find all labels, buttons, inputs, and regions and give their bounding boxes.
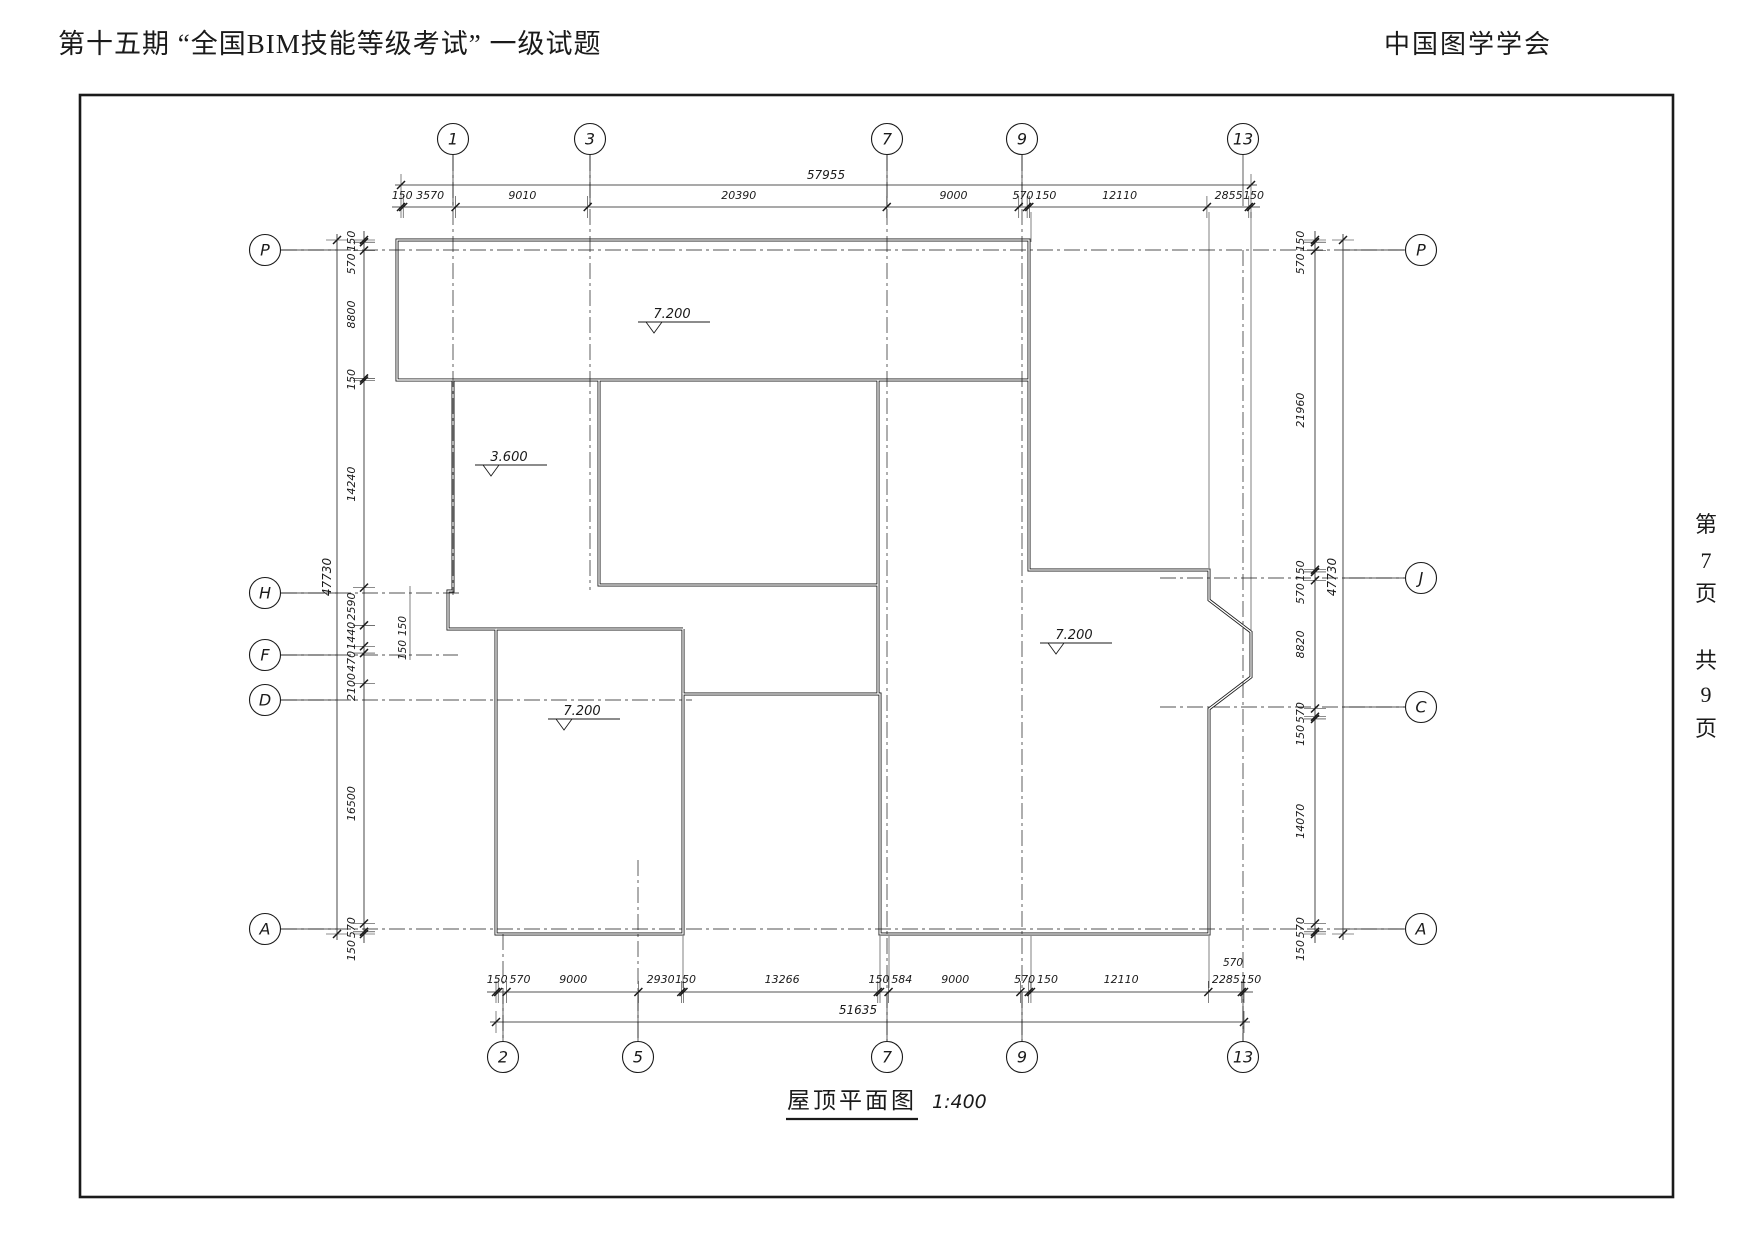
svg-text:150: 150 [487,973,508,986]
svg-text:A: A [1415,920,1427,939]
svg-text:A: A [259,920,271,939]
svg-text:150: 150 [1294,940,1307,961]
svg-text:2285: 2285 [1212,973,1240,986]
svg-text:7: 7 [882,130,893,149]
svg-text:C: C [1415,698,1427,717]
grid-circle-3: 3 [575,124,606,207]
svg-text:150: 150 [1294,560,1307,581]
dim-total-bottom: 51635 [490,1003,1250,1033]
svg-text:150: 150 [345,940,358,961]
roof-plan-drawing: 137913257913PHFDAPJCA1503570901020390900… [0,0,1754,1240]
svg-text:7: 7 [1701,548,1712,573]
svg-text:1: 1 [448,130,458,149]
svg-text:150: 150 [1037,973,1058,986]
svg-text:570: 570 [1013,189,1034,202]
svg-text:16500: 16500 [345,786,358,821]
svg-text:3570: 3570 [416,189,444,202]
svg-text:9000: 9000 [559,973,587,986]
grid-circle-7: 7 [872,124,903,207]
svg-text:570: 570 [345,253,358,274]
grid-circle-A: A [1344,914,1437,945]
dim-total-left: 47730 [320,234,348,940]
dim-total-right: 47730 [1325,234,1354,940]
svg-text:12110: 12110 [1102,189,1137,202]
svg-text:P: P [260,241,270,260]
grid-circle-P: P [1344,235,1437,266]
grid-circle-C: C [1344,692,1437,723]
svg-text:9: 9 [1017,1048,1027,1067]
svg-text:150: 150 [397,640,409,660]
svg-text:570: 570 [1294,917,1307,938]
svg-text:150: 150 [397,616,409,636]
dim-chain-top: 15035709010203909000570150121102855150 [392,189,1264,218]
svg-text:9000: 9000 [940,189,968,202]
svg-text:570: 570 [345,917,358,938]
svg-text:9: 9 [1701,682,1712,707]
svg-text:J: J [1416,569,1424,588]
grid-circle-D: D [250,685,337,716]
grid-circle-13: 13 [1228,993,1259,1073]
witness-lines [410,212,1251,988]
svg-text:7.200: 7.200 [1055,628,1092,643]
dim-extra-labels: 150150570 [397,616,1243,969]
svg-text:150: 150 [675,973,696,986]
svg-text:20390: 20390 [721,189,756,202]
elevation-marker-right-wing: 7.200 [1040,628,1112,654]
svg-text:47730: 47730 [1325,558,1339,597]
svg-text:3: 3 [585,130,595,149]
elevation-marker-left-middle: 3.600 [475,450,547,476]
grid-circle-9: 9 [1007,993,1038,1073]
grid-circle-P: P [250,235,337,266]
grid-circle-A: A [250,914,337,945]
svg-text:2930: 2930 [647,973,675,986]
svg-text:F: F [260,646,270,665]
svg-text:7: 7 [882,1048,893,1067]
svg-text:570: 570 [509,973,530,986]
svg-text:47730: 47730 [320,558,334,597]
drawing-sheet: 第十五期 “全国BIM技能等级考试” 一级试题 中国图学学会 137913257… [0,0,1754,1240]
svg-text:570: 570 [1294,702,1307,723]
svg-text:P: P [1416,241,1426,260]
svg-text:9000: 9000 [941,973,969,986]
svg-text:12110: 12110 [1104,973,1139,986]
svg-text:1440: 1440 [345,622,358,650]
svg-text:150: 150 [1294,725,1307,746]
svg-text:150: 150 [869,973,890,986]
svg-text:8820: 8820 [1294,630,1307,658]
svg-text:2100: 2100 [345,673,358,701]
svg-text:570: 570 [1294,253,1307,274]
svg-text:2855: 2855 [1215,189,1243,202]
svg-text:页: 页 [1695,581,1717,606]
svg-text:13266: 13266 [765,973,800,986]
svg-text:2: 2 [498,1048,508,1067]
svg-text:570: 570 [1223,957,1243,969]
building-outline [397,240,1251,934]
svg-text:150: 150 [1243,189,1264,202]
svg-text:150: 150 [392,189,413,202]
dim-chain-left: 1505708800150142402590144047021001650057… [345,231,375,961]
svg-text:21960: 21960 [1294,393,1307,428]
svg-text:第: 第 [1695,512,1717,537]
svg-text:9010: 9010 [508,189,536,202]
grid-circle-2: 2 [488,993,519,1073]
svg-text:2590: 2590 [345,592,358,620]
dim-chain-bottom: 1505709000293015013266150584900057015012… [487,973,1262,1003]
svg-text:570: 570 [1014,973,1035,986]
grid-circle-5: 5 [623,993,654,1073]
svg-text:14240: 14240 [345,467,358,502]
svg-text:57955: 57955 [807,168,845,182]
elevation-marker-lower-left: 7.200 [548,704,620,730]
svg-text:页: 页 [1695,716,1717,741]
svg-text:150: 150 [345,369,358,390]
svg-text:470: 470 [345,651,358,672]
svg-text:3.600: 3.600 [490,450,527,465]
svg-text:7.200: 7.200 [653,307,690,322]
svg-text:8800: 8800 [345,300,358,328]
grid-circles-right: PJCA [1344,235,1437,945]
svg-text:584: 584 [891,973,912,986]
svg-text:150: 150 [1240,973,1261,986]
grid-lines [281,155,1405,1041]
svg-text:7.200: 7.200 [563,704,600,719]
svg-text:共: 共 [1695,648,1717,673]
svg-text:H: H [259,584,271,603]
svg-text:51635: 51635 [839,1003,877,1017]
page-note: 第7页共9页 [1695,512,1717,741]
svg-text:9: 9 [1017,130,1027,149]
svg-text:14070: 14070 [1294,804,1307,839]
svg-text:570: 570 [1294,583,1307,604]
svg-text:屋顶平面图: 屋顶平面图 [787,1088,917,1113]
grid-circle-F: F [250,640,337,671]
svg-text:150: 150 [345,231,358,252]
svg-text:13: 13 [1233,130,1253,149]
svg-text:5: 5 [633,1048,643,1067]
dim-chain-right: 15057021960150570882057015014070570150 [1294,231,1326,961]
svg-text:13: 13 [1233,1048,1253,1067]
svg-text:D: D [259,691,271,710]
svg-text:1:400: 1:400 [932,1091,987,1113]
elevation-marker-top-bar: 7.200 [638,307,710,333]
drawing-title: 屋顶平面图1:400 [786,1088,987,1119]
svg-text:150: 150 [1035,189,1056,202]
svg-text:150: 150 [1294,231,1307,252]
grid-circle-J: J [1344,563,1437,594]
